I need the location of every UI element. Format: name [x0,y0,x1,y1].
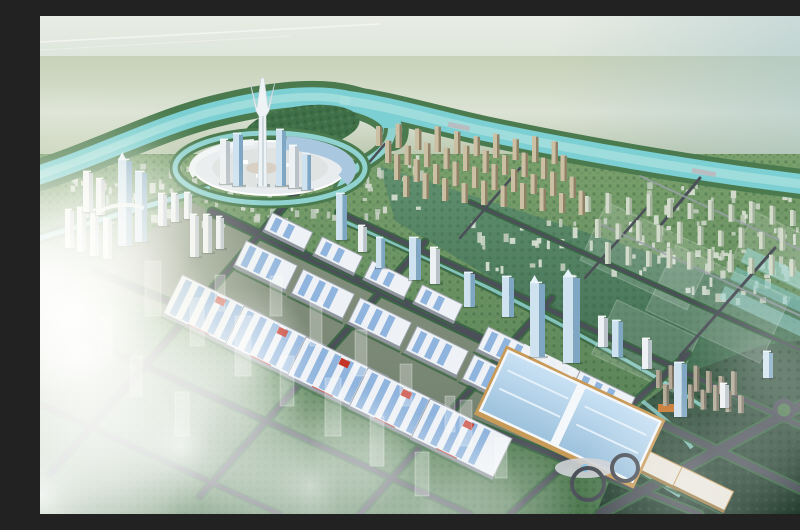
residential-slab-side [732,205,734,222]
residential-slab [570,177,574,199]
residential-slab-side [660,226,662,243]
tower-roof [336,193,345,195]
tower-side [648,340,652,369]
tower [358,226,363,252]
residential-slab [698,226,702,245]
distant-building [731,191,736,199]
distant-building [311,209,317,219]
residential-slab-side [496,165,498,190]
residential-slab-side [428,143,430,167]
residential-slab [626,246,630,265]
residential-slab [532,136,536,162]
residential-slab-side [476,167,478,188]
distant-building [416,207,421,210]
residential-slab [531,174,535,194]
aerial-rendering: Aerial master-plan rendering of a new ci… [40,16,800,514]
residential-slab-side [467,146,469,171]
tower [276,130,282,186]
residential-slab-side [478,137,480,156]
residential-slab [770,206,774,225]
distant-building [561,264,566,271]
residential-slab-side [574,177,576,198]
distant-building [732,198,736,203]
tower-side [363,227,367,252]
residential-slab [493,134,497,159]
distant-building [693,209,699,213]
residential-slab [687,252,691,270]
residential-slab-side [466,184,468,203]
residential-slab-side [589,197,591,212]
residential-slab-side [398,155,400,180]
tower-side [539,284,545,357]
residential-slab [626,197,630,215]
distant-building [547,220,552,226]
distant-building [732,232,736,235]
residential-slab [453,162,457,187]
residential-slab [595,219,599,238]
distant-building [756,204,761,210]
residential-slab-side [526,153,528,177]
residential-slab [667,248,671,269]
tower [430,248,436,284]
residential-slab [396,124,400,149]
residential-slab-side [457,162,459,186]
residential-slab [606,193,610,214]
tower-roof [612,320,621,322]
residential-slab-side [619,224,621,239]
residential-slab-side [711,250,713,271]
distant-building [720,253,723,256]
residential-slab-side [640,221,642,241]
residential-slab-side [565,156,567,181]
residential-slab [472,167,476,189]
residential-slab-side [446,179,448,201]
residential-slab [541,158,545,180]
residential-slab [403,176,407,198]
distant-building [327,212,331,219]
residential-slab-side [497,134,499,158]
residential-slab [579,191,583,216]
residential-slab [561,155,565,181]
residential-slab [729,204,733,222]
residential-slab-side [763,233,765,250]
residential-slab [385,140,389,163]
residential-slab [552,141,556,164]
residential-slab-side [458,132,460,154]
distant-building [332,215,336,221]
residential-slab-side [517,139,519,160]
residential-slab [502,155,506,175]
tower-side [471,274,475,307]
distant-building [392,195,398,201]
residential-slab [435,126,439,152]
residential-slab-side [671,199,673,217]
distant-building [573,222,576,227]
tower-side [573,278,580,363]
residential-slab-side [691,253,693,270]
tower [563,277,573,363]
tower [612,321,619,357]
residential-slab [442,178,446,201]
tower [642,339,648,369]
residential-slab-side [650,195,652,216]
residential-slab [492,164,496,190]
distant-building [377,168,381,177]
residential-slab-side [712,201,714,221]
residential-slab-side [681,222,683,243]
distant-building [718,256,722,260]
residential-slab-side [427,174,429,199]
residential-slab [616,223,620,239]
residential-slab-side [630,198,632,215]
scene-svg [40,16,800,514]
residential-slab [728,253,732,272]
residential-slab-side [437,165,439,184]
fog-blob [310,386,430,506]
distant-building [647,182,653,189]
tower-roof [502,276,512,278]
residential-slab [376,126,380,146]
residential-slab [520,183,524,209]
tower-roof [376,237,383,239]
distant-building [510,238,516,244]
tower-side [295,147,299,188]
residential-slab-side [485,181,487,205]
residential-slab-side [439,127,441,152]
distant-building [486,262,490,271]
residential-slab-side [773,206,775,224]
residential-slab-side [389,141,391,163]
distant-building [496,268,499,272]
residential-slab [759,232,763,250]
residential-slab [433,164,437,184]
tower-roof [409,237,419,239]
residential-slab [444,148,448,170]
tower [302,154,307,190]
residential-slab [462,183,466,203]
residential-slab-side [409,146,411,165]
tower [598,317,604,347]
residential-slab-side [563,194,565,213]
residential-slab-side [505,186,507,207]
tower-roof [464,272,473,274]
residential-slab [677,222,681,244]
residential-slab [483,150,487,173]
tower-side [604,318,608,347]
residential-slab [667,199,671,218]
residential-slab [646,251,650,267]
distant-building [681,186,684,190]
tower [409,238,416,280]
residential-slab [414,159,418,182]
residential-slab-side [506,156,508,175]
residential-slab [559,193,563,213]
residential-slab-side [407,176,409,197]
residential-slab-side [554,172,556,196]
residential-slab-side [701,227,703,245]
residential-slab-side [753,202,755,223]
residential-slab-side [556,142,558,164]
tower-roof [302,153,309,155]
residential-slab-side [545,158,547,179]
residential-slab [511,169,515,192]
residential-slab [513,139,517,161]
tower-roof [276,129,284,131]
tower-side [436,249,440,284]
distant-building [504,234,509,243]
residential-slab [605,242,609,264]
tower [464,273,471,307]
residential-slab [708,200,712,221]
tower-roof [598,316,606,318]
residential-slab [415,129,419,151]
residential-slab-side [609,243,611,264]
residential-slab-side [544,189,546,211]
tower-roof [233,133,241,135]
fog-blob [160,286,320,446]
residential-slab-side [599,220,601,238]
residential-slab [463,145,467,171]
residential-slab-side [448,148,450,169]
distant-building [501,266,504,274]
tower [336,194,343,240]
residential-slab-side [380,127,382,146]
distant-building [363,198,367,201]
distant-building [539,260,542,268]
residential-slab [550,172,554,197]
tower-roof [220,139,228,141]
distant-building [701,221,706,226]
tower-side [282,131,286,186]
fog-blob [50,136,210,296]
residential-slab [522,153,526,178]
residential-slab-side [400,124,402,148]
distant-building [481,236,485,245]
distant-building [383,207,387,214]
distant-building [482,245,485,249]
residential-slab-side [536,137,538,162]
residential-slab [405,145,409,165]
residential-slab [688,203,692,219]
residential-slab-side [722,231,724,246]
distant-building [742,211,746,216]
residential-slab-side [629,247,631,265]
residential-slab [474,136,478,156]
residential-slab [585,196,589,212]
distant-building [532,240,538,245]
residential-slab-side [609,194,611,214]
distant-building [667,226,671,230]
distant-building [530,263,536,267]
tower-roof [430,247,438,249]
tower [289,146,295,188]
distant-building [654,215,659,224]
residential-slab-side [732,254,734,272]
residential-slab [423,173,427,199]
residential-slab [708,249,712,271]
distant-building [376,213,380,220]
tower-roof [642,338,650,340]
tower-side [509,278,514,317]
tower-side [619,322,623,357]
tower-roof [289,145,297,147]
residential-slab [394,154,398,180]
residential-slab-side [583,191,585,215]
distant-building [697,221,700,226]
residential-slab-side [650,252,652,267]
tower [530,283,539,357]
residential-slab [636,220,640,241]
residential-slab [749,201,753,223]
distant-building [368,187,373,191]
residential-slab [481,181,485,206]
residential-slab-side [742,228,744,248]
tower-side [307,155,311,190]
residential-slab-side [535,175,537,194]
residential-slab [540,188,544,211]
tower-roof [358,225,365,227]
tower-side [416,239,421,280]
residential-slab [657,225,661,243]
residential-slab [454,131,458,154]
tower [502,277,509,317]
residential-slab [718,230,722,246]
residential-slab-side [418,160,420,182]
tower-side [381,239,385,268]
distant-building [559,219,562,227]
residential-slab-side [670,249,672,269]
residential-slab-side [419,129,421,150]
residential-slab-side [524,184,526,209]
residential-slab [739,227,743,248]
residential-slab-side [487,151,489,173]
distant-building [295,210,299,217]
residential-slab [501,186,505,208]
residential-slab [424,143,428,168]
ghost-building [355,330,367,376]
distant-building [573,227,578,238]
tower [376,238,381,268]
distant-building [547,240,550,249]
residential-slab-side [515,170,517,192]
residential-slab [647,194,651,216]
residential-slab-side [691,204,693,219]
tower-side [343,195,347,240]
